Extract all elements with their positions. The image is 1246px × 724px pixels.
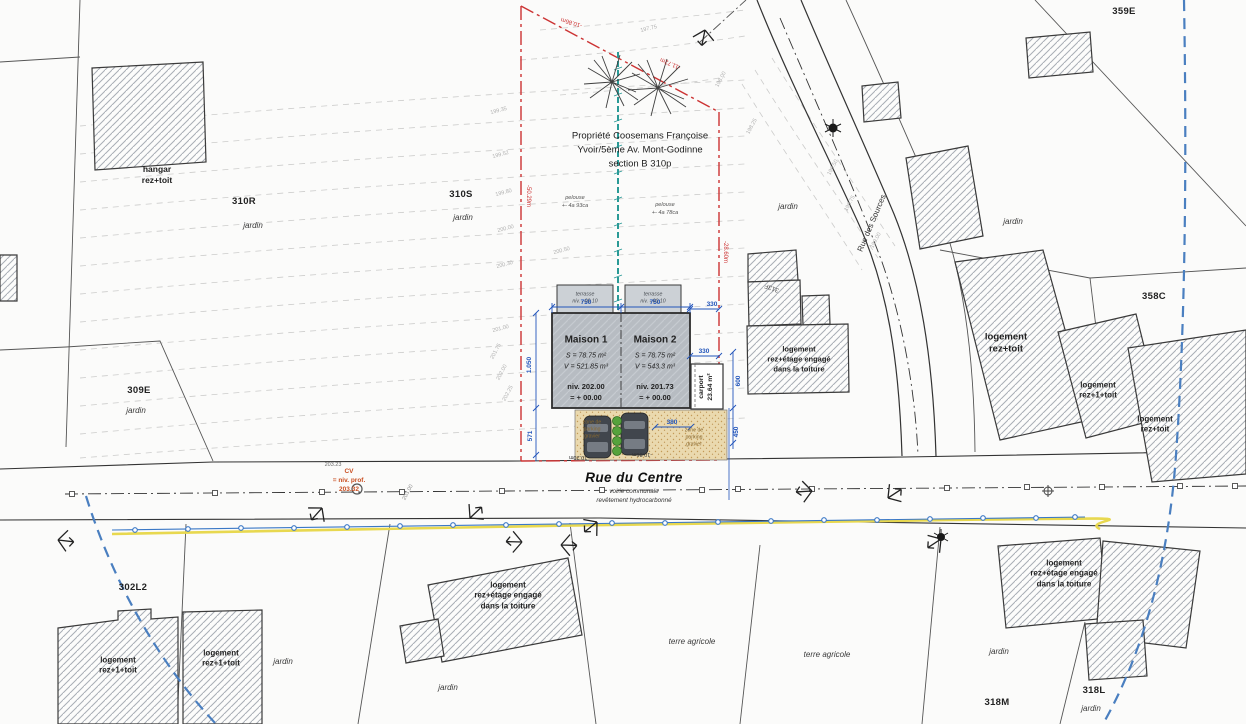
svg-text:450: 450 bbox=[733, 426, 740, 437]
svg-text:600: 600 bbox=[735, 375, 742, 386]
svg-text:202.00: 202.00 bbox=[496, 364, 509, 382]
svg-text:750: 750 bbox=[650, 299, 661, 306]
building-313f-1 bbox=[748, 250, 798, 282]
building-313f-3 bbox=[802, 295, 830, 325]
building-hangar bbox=[92, 62, 206, 170]
building-topright-small bbox=[862, 82, 901, 122]
building-southeast-1 bbox=[998, 538, 1108, 628]
valve-icon bbox=[1042, 485, 1054, 497]
building-topright-big bbox=[906, 146, 983, 249]
svg-text:-28.60m: -28.60m bbox=[722, 241, 728, 263]
building-bottomcenter bbox=[428, 558, 582, 662]
svg-text:197.75: 197.75 bbox=[640, 24, 658, 34]
tree-icon bbox=[584, 55, 640, 108]
svg-text:200.50: 200.50 bbox=[553, 246, 571, 256]
boundary-length-labels: -10.86m -11.72m -50.29m -28.60m bbox=[525, 16, 728, 263]
car-icon bbox=[621, 413, 648, 455]
svg-text:200.00: 200.00 bbox=[497, 224, 515, 234]
street-utilities bbox=[112, 515, 1110, 534]
building-topright-upper bbox=[1026, 32, 1093, 78]
rue-du-centre-road bbox=[0, 451, 1246, 528]
svg-text:199.52: 199.52 bbox=[492, 150, 510, 160]
building-bottomcenter-small bbox=[400, 619, 444, 663]
svg-text:199.35: 199.35 bbox=[490, 106, 508, 116]
svg-text:380: 380 bbox=[667, 419, 678, 426]
building-right-low bbox=[1128, 330, 1246, 482]
svg-text:-10.86m: -10.86m bbox=[560, 16, 583, 28]
utility-pole-icon bbox=[934, 529, 948, 541]
manhole-icon bbox=[352, 484, 362, 494]
svg-text:198.75: 198.75 bbox=[844, 195, 857, 213]
svg-text:198.50: 198.50 bbox=[827, 159, 840, 177]
svg-text:198.00: 198.00 bbox=[715, 71, 728, 89]
svg-text:750: 750 bbox=[581, 299, 592, 306]
houses-block bbox=[552, 285, 723, 409]
survey-point-squares bbox=[70, 484, 1238, 497]
svg-text:1.050: 1.050 bbox=[526, 356, 533, 373]
building-313f-big bbox=[747, 324, 849, 394]
svg-text:571: 571 bbox=[527, 430, 534, 441]
svg-text:-10.86m: -10.86m bbox=[631, 451, 652, 457]
svg-text:203.23: 203.23 bbox=[325, 462, 342, 468]
building-bottomleft-1 bbox=[58, 609, 178, 724]
svg-text:-10.20m: -10.20m bbox=[568, 454, 589, 460]
svg-text:-11.72m: -11.72m bbox=[660, 56, 682, 70]
plan-drawing: 197.75 198.00 198.25 198.50 198.75 199.0… bbox=[0, 0, 1246, 724]
svg-text:330: 330 bbox=[699, 348, 710, 355]
building-left-edge bbox=[0, 255, 17, 301]
svg-text:198.25: 198.25 bbox=[746, 118, 759, 136]
building-bottomleft-2 bbox=[183, 610, 262, 724]
car-icon bbox=[584, 416, 611, 458]
svg-text:201.75: 201.75 bbox=[490, 343, 503, 361]
site-plan: 197.75 198.00 198.25 198.50 198.75 199.0… bbox=[0, 0, 1246, 724]
svg-text:202.25: 202.25 bbox=[502, 385, 515, 403]
svg-text:330: 330 bbox=[707, 301, 718, 308]
svg-text:201.00: 201.00 bbox=[492, 324, 510, 334]
svg-text:200.30: 200.30 bbox=[496, 260, 514, 270]
building-313f-2 bbox=[748, 280, 801, 326]
carport bbox=[691, 364, 723, 409]
svg-text:-50.29m: -50.29m bbox=[525, 185, 531, 207]
plot-divider-teal bbox=[614, 52, 622, 312]
svg-text:199.80: 199.80 bbox=[495, 188, 513, 198]
